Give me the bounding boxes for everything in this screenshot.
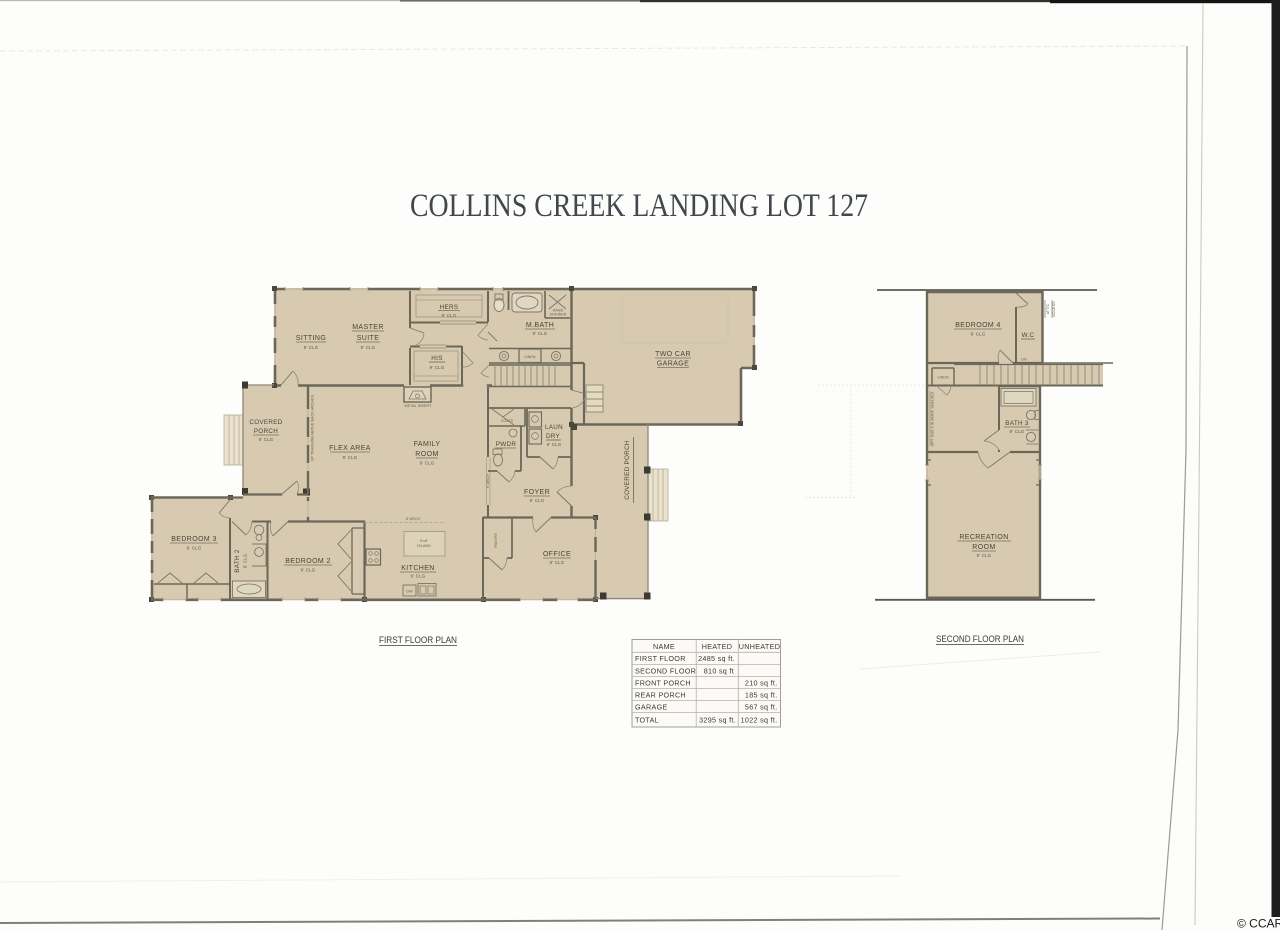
svg-text:MASTER: MASTER [352,324,384,331]
svg-text:W.C: W.C [1022,332,1035,339]
svg-text:TOTAL: TOTAL [635,716,659,725]
svg-text:ATTIC: ATTIC [1046,303,1050,314]
svg-text:9' CLG: 9' CLG [442,313,457,318]
svg-text:FAMILY: FAMILY [414,441,441,448]
svg-text:COATS: COATS [501,419,514,423]
svg-text:PORCH: PORCH [254,428,278,435]
svg-text:SECOND FLOOR PLAN: SECOND FLOOR PLAN [936,634,1024,644]
svg-text:9' CLG: 9' CLG [411,574,426,579]
svg-text:LINEN: LINEN [524,355,535,359]
svg-text:9' CLG: 9' CLG [977,553,992,558]
svg-text:FIRST FLOOR: FIRST FLOOR [635,654,686,663]
svg-text:DW: DW [406,590,413,594]
svg-text:9' CLG: 9' CLG [343,455,358,460]
svg-text:DRY: DRY [546,433,561,440]
svg-text:567 sq ft.: 567 sq ft. [745,702,778,711]
svg-text:HIS: HIS [431,355,442,362]
svg-text:3295 sq ft.: 3295 sq ft. [699,716,736,725]
svg-text:9' CLG: 9' CLG [530,498,545,503]
svg-text:9' CLG: 9' CLG [533,331,548,336]
svg-text:GARAGE: GARAGE [635,702,668,711]
svg-text:COLLINS CREEK LANDING LOT 127: COLLINS CREEK LANDING LOT 127 [410,188,868,224]
svg-text:RECREATION: RECREATION [959,534,1008,541]
svg-text:1022 sq ft.: 1022 sq ft. [741,716,778,725]
svg-text:ROOM: ROOM [415,451,438,458]
svg-text:BEDROOM 2: BEDROOM 2 [285,558,331,565]
svg-text:9' CLG: 9' CLG [971,332,986,337]
svg-text:ISLAND: ISLAND [417,544,431,548]
svg-text:FRONT PORCH: FRONT PORCH [635,678,691,687]
svg-text:UNHEATED: UNHEATED [739,642,780,651]
svg-text:BEDROOM 4: BEDROOM 4 [955,322,1001,329]
svg-text:9' CLG: 9' CLG [420,461,435,466]
svg-text:9' CLG: 9' CLG [361,345,376,350]
svg-text:DN: DN [1021,358,1027,362]
svg-text:9' CLG: 9' CLG [430,365,445,370]
svg-text:PWDR: PWDR [496,441,517,448]
svg-text:210 sq ft.: 210 sq ft. [745,678,778,687]
svg-text:5'x8': 5'x8' [420,539,428,543]
svg-text:LAUN: LAUN [545,424,563,431]
svg-text:ROOM: ROOM [972,544,995,551]
svg-text:NAME: NAME [653,642,675,651]
svg-text:FLEX AREA: FLEX AREA [329,445,371,452]
svg-text:METAL INSERT: METAL INSERT [405,404,433,408]
svg-text:OFFICE: OFFICE [543,551,571,558]
svg-text:9' CLG: 9' CLG [547,442,562,447]
svg-text:FOYER: FOYER [524,489,550,496]
svg-text:HERS: HERS [440,304,459,311]
svg-text:BEDROOM 3: BEDROOM 3 [171,536,217,543]
svg-text:M.BATH: M.BATH [526,322,554,329]
svg-text:9' CLG: 9' CLG [243,553,248,568]
svg-text:UP TRANSOM ABOVE BACK ARCHES: UP TRANSOM ABOVE BACK ARCHES [311,394,315,461]
svg-text:BATH 3: BATH 3 [1005,420,1029,427]
svg-text:9' ARCH: 9' ARCH [486,474,490,489]
svg-text:SECOND FLOOR: SECOND FLOOR [635,666,696,675]
svg-text:FIRST FLOOR PLAN: FIRST FLOOR PLAN [379,635,457,645]
svg-text:REAR PORCH: REAR PORCH [635,690,686,699]
svg-text:BATH 2: BATH 2 [234,549,241,573]
svg-text:9' CLG: 9' CLG [304,345,319,350]
svg-text:© CCAR: © CCAR [1237,917,1280,930]
svg-text:9' CLG: 9' CLG [301,568,316,573]
svg-text:SHOWER: SHOWER [550,313,567,317]
svg-text:185 sq ft.: 185 sq ft. [745,690,778,699]
svg-text:ACCESS: ACCESS [1052,301,1056,317]
svg-text:9' CLG: 9' CLG [187,546,202,551]
svg-text:PANTRY: PANTRY [494,532,498,547]
svg-text:OPT. BUILT-IN BOOK SHELVES: OPT. BUILT-IN BOOK SHELVES [931,391,935,446]
svg-text:9' CLG: 9' CLG [259,437,274,442]
svg-text:SITTING: SITTING [296,335,326,342]
svg-text:8' ARCH: 8' ARCH [406,517,421,521]
svg-text:SUITE: SUITE [357,335,380,342]
svg-text:GARAGE: GARAGE [657,361,689,368]
svg-text:2485 sq ft.: 2485 sq ft. [698,654,735,663]
svg-text:9' CLG: 9' CLG [1010,429,1025,434]
svg-text:COVERED: COVERED [249,419,282,426]
svg-text:810 sq ft: 810 sq ft [704,666,734,675]
svg-text:9' CLG: 9' CLG [550,560,565,565]
svg-text:LINEN: LINEN [937,376,948,380]
svg-text:HEATED: HEATED [702,642,732,651]
svg-text:COVERED PORCH: COVERED PORCH [624,440,631,500]
svg-text:TWO CAR: TWO CAR [655,351,691,358]
svg-text:KITCHEN: KITCHEN [401,565,435,572]
